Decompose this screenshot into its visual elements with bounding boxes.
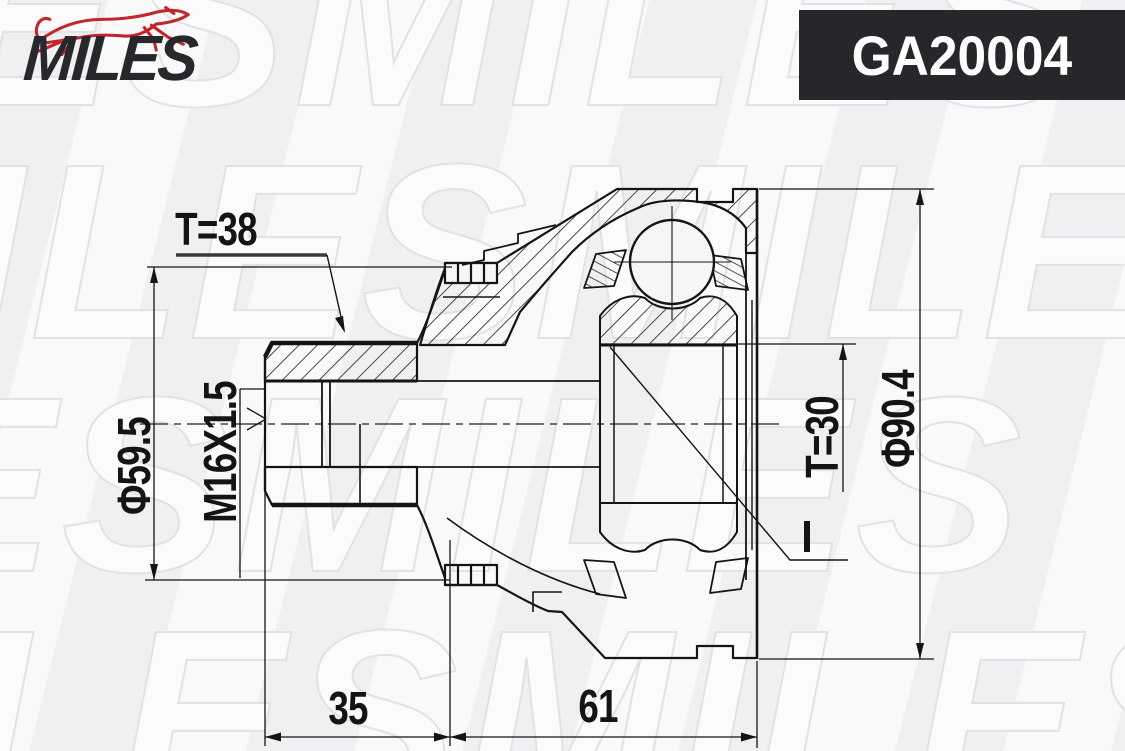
dimension-inner-spline: T=30	[600, 344, 856, 492]
dim-label-outer-spline: T=38	[175, 203, 257, 255]
dim-label-stub-length: 35	[328, 682, 367, 734]
dimension-thread: M16X1.5	[194, 381, 266, 578]
dim-label-bell-diameter: Φ90.4	[872, 369, 924, 467]
cv-joint-technical-drawing: T=38 Φ59.5 M16X1.5 T=30 Φ90.4	[0, 0, 1125, 751]
part-number-text: GA20004	[852, 23, 1073, 88]
brand-logo: MILES	[16, 2, 316, 102]
part-number-badge: GA20004	[799, 10, 1125, 100]
dim-label-inner-spline: T=30	[796, 396, 848, 478]
dim-label-left-diameter: Φ59.5	[108, 417, 160, 515]
dimension-lengths: 35 61	[265, 472, 757, 748]
dim-label-bell-length: 61	[578, 680, 617, 732]
dim-label-thread: M16X1.5	[194, 381, 246, 523]
dimension-outer-spline: T=38	[175, 203, 345, 333]
brand-logo-text: MILES	[22, 26, 198, 90]
